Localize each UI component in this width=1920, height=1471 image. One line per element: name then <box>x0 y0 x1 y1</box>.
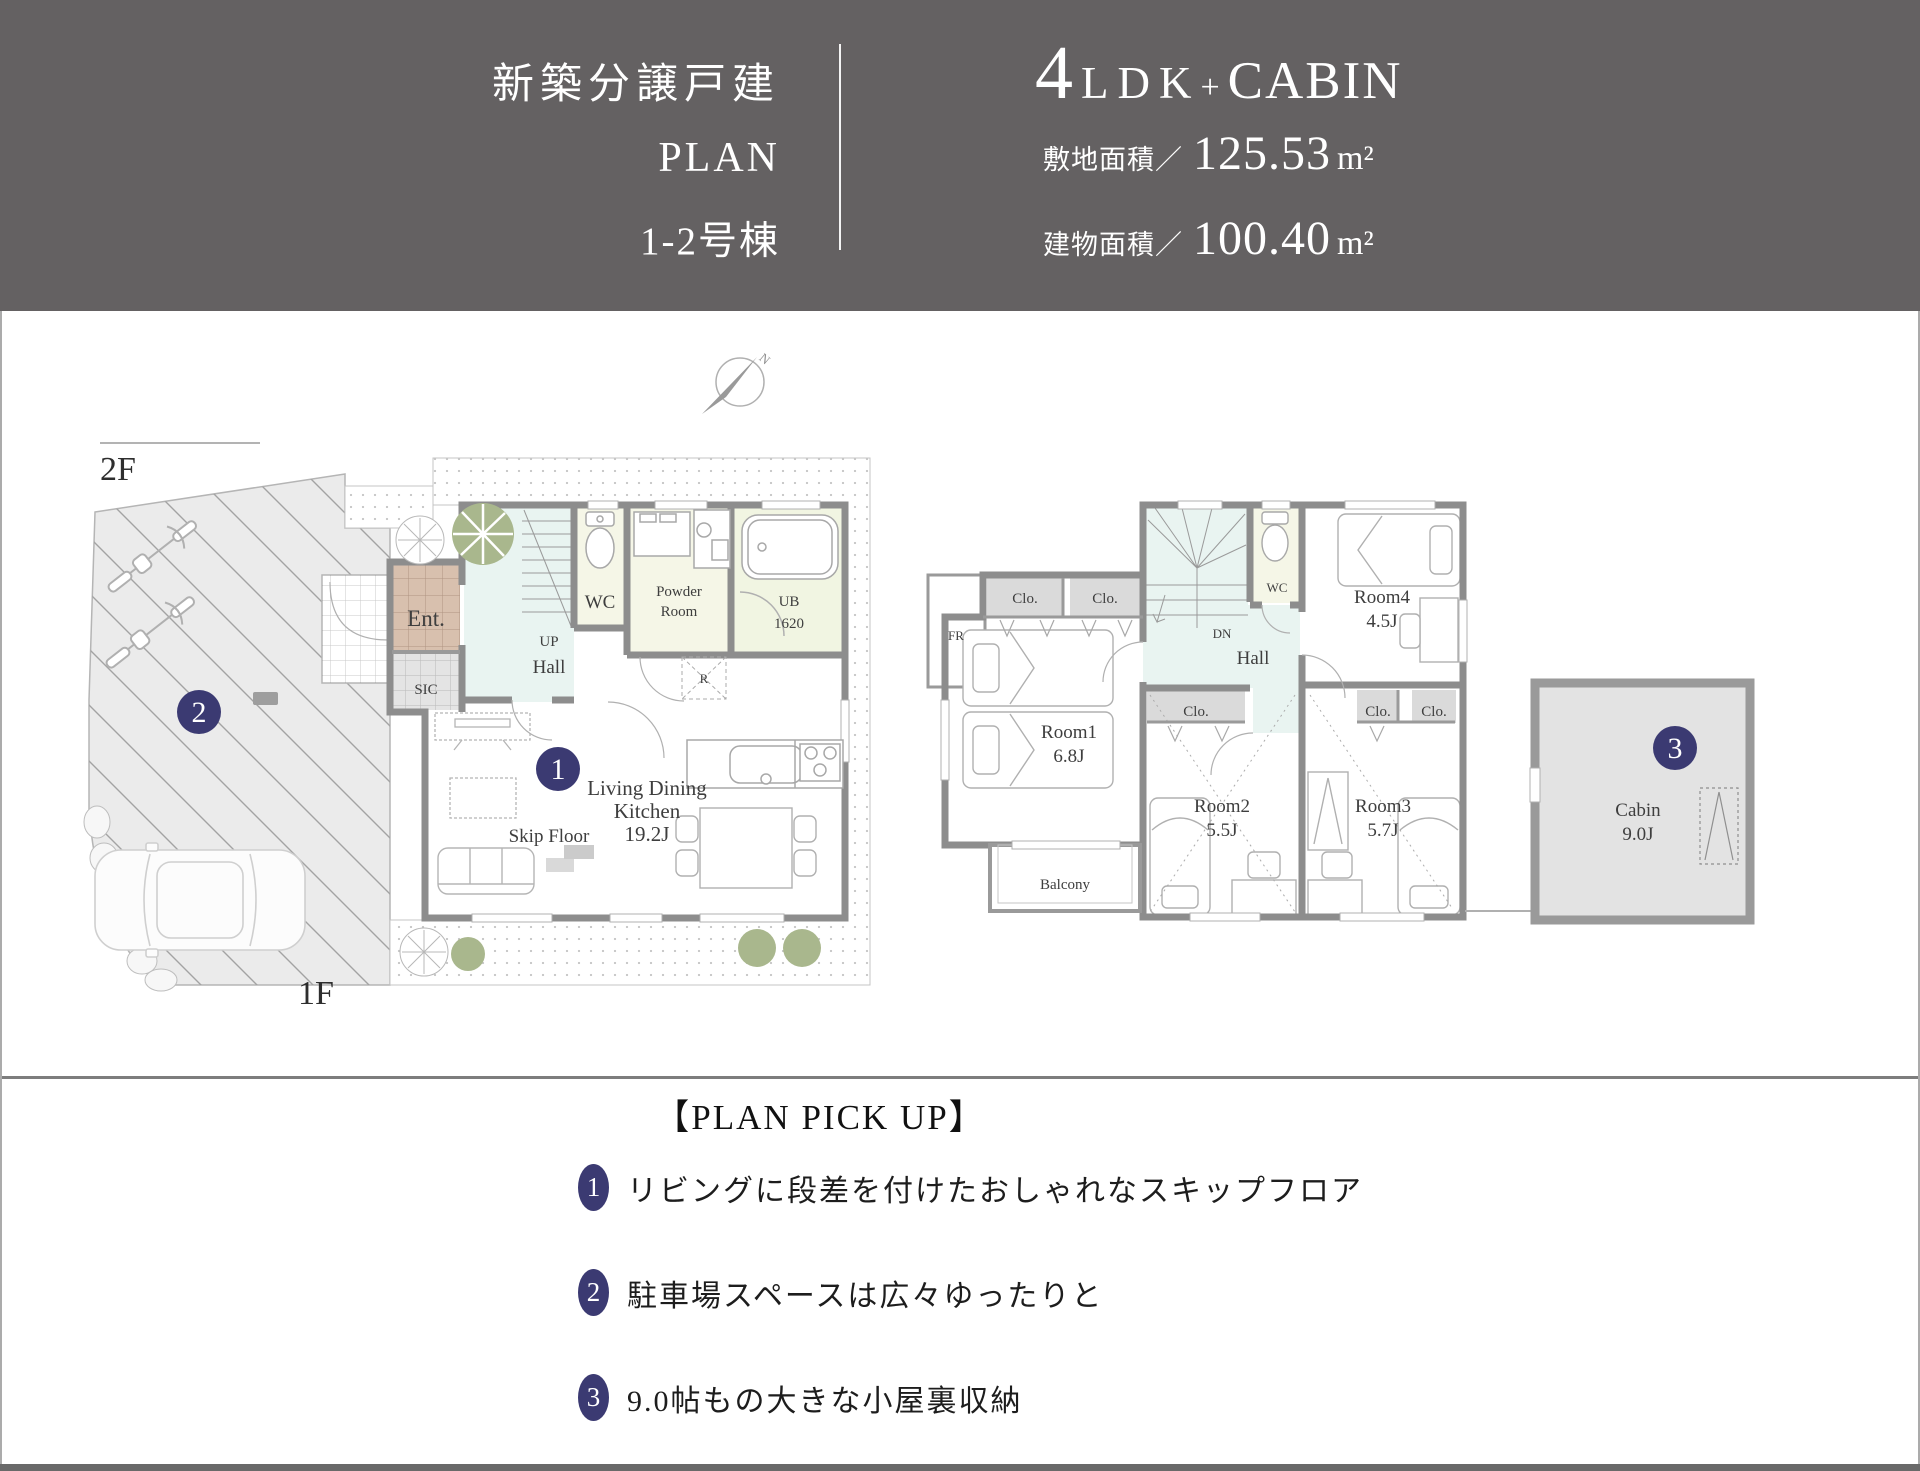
label-room3: Room3 <box>1355 796 1411 817</box>
toilet-icon <box>586 512 614 568</box>
layout-number: 4 <box>1035 30 1073 117</box>
flyer-page: 新築分譲戸建 PLAN 1-2号棟 4 LDK + CABIN 敷地面積／ 12… <box>0 0 1920 1471</box>
layout-line: 4 LDK + CABIN <box>1035 30 1403 117</box>
label-skip-floor: Skip Floor <box>509 826 590 847</box>
land-area-label: 敷地面積／ <box>1043 138 1183 177</box>
label-sic: SIC <box>414 682 437 698</box>
label-room2-size: 5.5J <box>1206 820 1237 841</box>
pickup-badge-2: 2 <box>578 1269 609 1316</box>
label-balcony: Balcony <box>1040 877 1090 893</box>
land-area-unit: m² <box>1337 140 1374 178</box>
layout-cabin: CABIN <box>1228 51 1403 111</box>
label-room4: Room4 <box>1354 587 1410 608</box>
label-ldk-2: Kitchen <box>614 799 681 823</box>
pickup-badge-1: 1 <box>578 1164 609 1211</box>
building-area-unit: m² <box>1337 225 1374 263</box>
label-ub-2: 1620 <box>774 616 804 632</box>
label-room4-size: 4.5J <box>1366 611 1397 632</box>
pickup-item-3: 3 9.0帖もの大きな小屋裏収納 <box>578 1374 1023 1421</box>
building-number: 1-2号棟 <box>640 210 780 266</box>
pickup-text-1: リビングに段差を付けたおしゃれなスキップフロア <box>627 1166 1363 1210</box>
car <box>95 843 305 957</box>
label-powder-1: Powder <box>656 584 702 600</box>
floor2-plan: FR Clo. Clo. Clo. Clo. Clo. DN Hall WC R… <box>928 501 1467 921</box>
label-clo: Clo. <box>1365 704 1390 720</box>
compass-north: N <box>757 350 774 368</box>
floor-plan-drawing: 2 <box>0 311 1920 1076</box>
badge-3: 3 <box>1668 732 1683 765</box>
label-ub-1: UB <box>779 594 800 610</box>
label-2f: 2F <box>100 451 136 488</box>
header: 新築分譲戸建 PLAN 1-2号棟 4 LDK + CABIN 敷地面積／ 12… <box>0 0 1920 311</box>
floor1-plan: Ent. SIC UP Hall WC Powder Room UB 1620 … <box>390 501 849 922</box>
label-fr: FR <box>948 628 964 643</box>
label-ldk-size: 19.2J <box>625 822 670 846</box>
label-powder-2: Room <box>661 604 698 620</box>
building-area-label: 建物面積／ <box>1043 223 1183 262</box>
label-cabin-size: 9.0J <box>1622 824 1653 845</box>
pickup-badge-3: 3 <box>578 1374 609 1421</box>
label-dn: DN <box>1213 626 1232 641</box>
plan-word: PLAN <box>658 134 780 182</box>
layout-plus: + <box>1200 69 1219 107</box>
label-refrigerator: R <box>700 671 709 686</box>
label-clo: Clo. <box>1183 704 1208 720</box>
pickup-item-2: 2 駐車場スペースは広々ゆったりと <box>578 1269 1103 1316</box>
property-type: 新築分譲戸建 <box>492 50 780 111</box>
label-clo: Clo. <box>1421 704 1446 720</box>
label-hall-1f: Hall <box>533 657 566 678</box>
label-wc-2f: WC <box>1267 580 1288 595</box>
building-area-value: 100.40 <box>1193 211 1331 266</box>
label-cabin: Cabin <box>1615 800 1661 821</box>
label-room1: Room1 <box>1041 722 1097 743</box>
label-1f: 1F <box>298 975 334 1012</box>
building-area-line: 建物面積／ 100.40 m² <box>1043 211 1374 266</box>
pickup-text-3: 9.0帖もの大きな小屋裏収納 <box>627 1376 1023 1420</box>
cabin-plan: 3 Cabin 9.0J <box>1530 683 1750 920</box>
label-wc-1f: WC <box>585 592 616 613</box>
floor-plan-area: 2 <box>0 311 1920 1076</box>
header-divider <box>839 44 841 250</box>
label-clo: Clo. <box>1012 591 1037 607</box>
wheel-stopper <box>253 692 278 705</box>
land-area-value: 125.53 <box>1193 126 1331 181</box>
label-room1-size: 6.8J <box>1053 746 1084 767</box>
entrance-porch <box>322 575 390 683</box>
compass-icon: N <box>702 350 774 414</box>
bottom-bar <box>0 1464 1920 1471</box>
label-room3-size: 5.7J <box>1367 820 1398 841</box>
label-clo: Clo. <box>1092 591 1117 607</box>
label-room2: Room2 <box>1194 796 1250 817</box>
pickup-text-2: 駐車場スペースは広々ゆったりと <box>627 1271 1103 1315</box>
badge-2: 2 <box>192 696 207 729</box>
label-hall-2f: Hall <box>1237 648 1270 669</box>
badge-1: 1 <box>551 753 566 786</box>
pickup-item-1: 1 リビングに段差を付けたおしゃれなスキップフロア <box>578 1164 1363 1211</box>
label-entrance: Ent. <box>407 606 445 631</box>
left-page-edge <box>0 311 2 1471</box>
toilet2-icon <box>1262 512 1288 561</box>
pickup-heading: 【PLAN PICK UP】 <box>654 1089 985 1140</box>
label-up: UP <box>539 634 558 650</box>
label-ldk-1: Living Dining <box>587 776 707 800</box>
kitchen-counter <box>687 740 843 788</box>
land-area-line: 敷地面積／ 125.53 m² <box>1043 126 1374 181</box>
parking-area: 2 <box>84 474 390 991</box>
layout-ldk: LDK <box>1081 57 1200 109</box>
